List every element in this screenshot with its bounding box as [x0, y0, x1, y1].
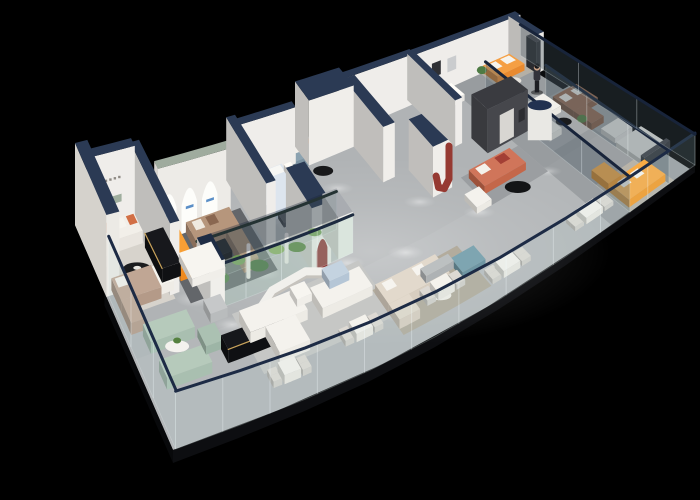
showroom-scene-svg: [0, 0, 700, 500]
black-oval-table: [505, 181, 531, 193]
wall-sign-plaques: [118, 176, 120, 178]
wall-sign-plaques: [114, 177, 116, 179]
divider-wall-4: [455, 97, 462, 146]
showroom-render-stage: [0, 0, 700, 500]
slate-coffee-table: [313, 166, 333, 176]
display-cylinder: [528, 105, 552, 140]
light-pool: [404, 196, 436, 208]
light-pool: [388, 246, 424, 260]
white-column: [383, 122, 395, 182]
scene-root: [75, 11, 695, 463]
wall-sign-plaques: [109, 178, 111, 180]
showroom-person-torso: [534, 70, 541, 80]
showroom-person-legs: [535, 80, 539, 92]
table-plant: [173, 337, 181, 343]
display-cylinder-cap: [528, 100, 552, 110]
